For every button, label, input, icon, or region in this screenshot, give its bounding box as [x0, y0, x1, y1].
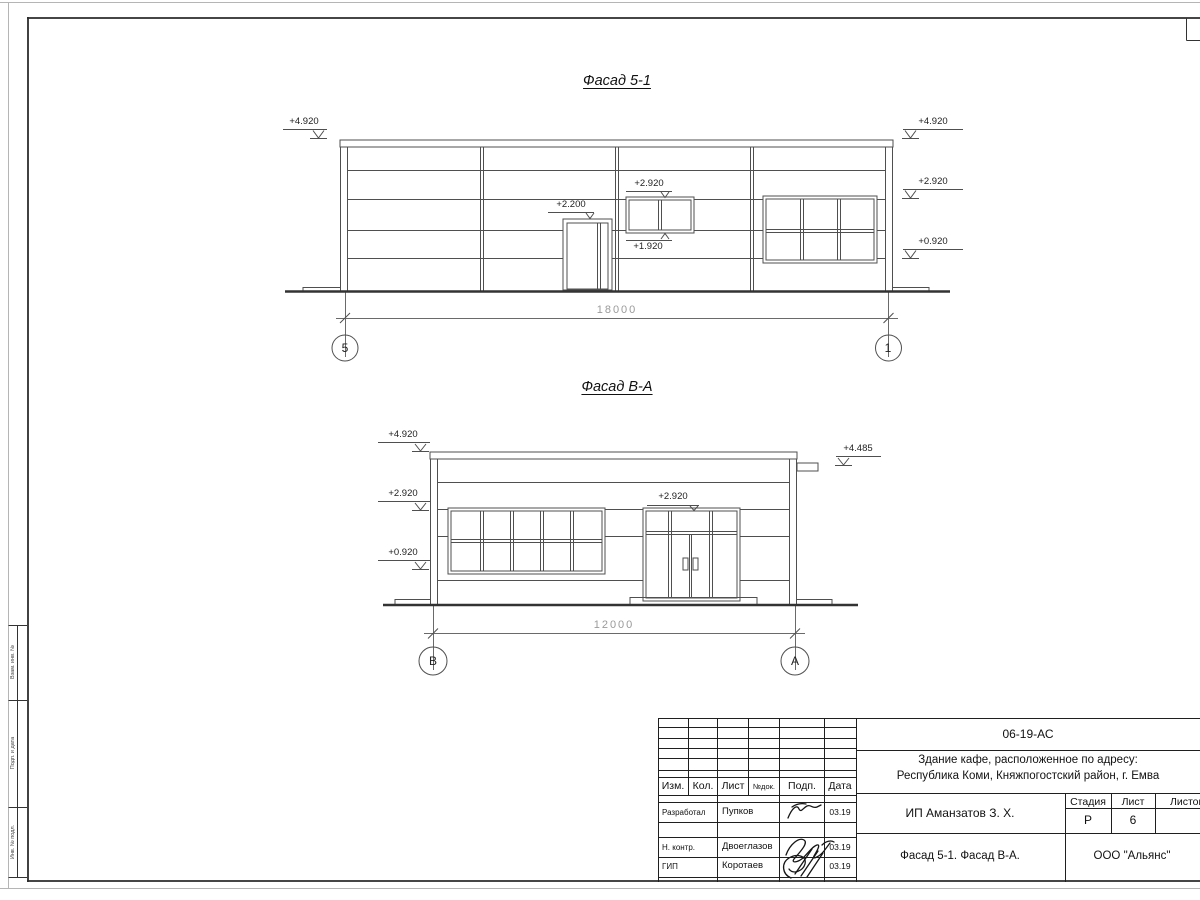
titleblock-project-line2: Республика Коми, Княжпогостский район, г…	[897, 771, 1159, 783]
titleblock-sheets-label: Листов	[1170, 797, 1200, 808]
facade1-level-right-mid: +2.920	[918, 177, 947, 187]
facade1-level-right-top: +4.920	[918, 117, 947, 127]
facade1-level-window-bottom: +1.920	[633, 242, 662, 252]
titleblock-date-gip: 03.19	[829, 862, 850, 871]
titleblock-col-podp: Подп.	[788, 781, 816, 792]
titleblock-role-gip: ГИП	[662, 863, 678, 871]
facade2-dimension: 12000	[594, 620, 635, 631]
facade1-level-left-top: +4.920	[289, 117, 318, 127]
facade1-level-door: +2.200	[556, 200, 585, 210]
facade2-axis-a: А	[791, 655, 799, 667]
titleblock-doc-number: 06-19-АС	[1002, 728, 1053, 740]
signatures	[784, 804, 834, 878]
titleblock-sheet-value: 6	[1130, 814, 1137, 826]
titleblock-role-developer: Разработал	[662, 809, 706, 817]
facade1-axis-5: 5	[342, 342, 349, 354]
facade1-axis-1: 1	[885, 342, 892, 354]
titleblock-sheet-label: Лист	[1122, 797, 1145, 808]
titleblock-col-data: Дата	[828, 781, 851, 792]
facade2-level-right-top: +4.485	[843, 444, 872, 454]
facade1-level-window-top: +2.920	[634, 179, 663, 189]
frame-corner-box	[1187, 18, 1200, 41]
titleblock-date-developer: 03.19	[829, 808, 850, 817]
titleblock-col-list: Лист	[722, 781, 745, 792]
titleblock-date-ncontrol: 03.19	[829, 843, 850, 852]
facade2-level-left-low: +0.920	[388, 548, 417, 558]
facade1-level-right-low: +0.920	[918, 237, 947, 247]
facade2-title: Фасад В-А	[581, 380, 652, 395]
titleblock-stage-value: Р	[1084, 814, 1092, 826]
titleblock-col-izm: Изм.	[662, 781, 685, 792]
drawing-sheet: Взам. инв. № Подп. и дата Инв. № подл. Ф…	[0, 0, 1200, 900]
titleblock-col-ndok: №док.	[753, 783, 775, 791]
titleblock-name-gip: Коротаев	[722, 861, 763, 871]
titleblock-sheet-title: Фасад 5-1. Фасад В-А.	[900, 851, 1020, 863]
titleblock-stage-label: Стадия	[1070, 797, 1106, 808]
margin-label-vzam: Взам. инв. №	[10, 645, 16, 679]
facade2-level-door: +2.920	[658, 492, 687, 502]
titleblock-company: ООО "Альянс"	[1094, 851, 1171, 863]
titleblock-col-kol: Кол.	[693, 781, 714, 792]
facade1-dimension: 18000	[597, 305, 638, 316]
margin-label-podp: Подп. и дата	[10, 737, 16, 769]
margin-label-inv: Инв. № подл.	[10, 825, 16, 859]
titleblock-name-developer: Пупков	[722, 807, 753, 817]
titleblock-name-ncontrol: Двоеглазов	[722, 842, 773, 852]
titleblock-client: ИП Аманзатов З. Х.	[905, 807, 1014, 819]
facade-b-a-linework	[378, 443, 881, 671]
facade1-title: Фасад 5-1	[583, 74, 651, 89]
facade2-level-left-mid: +2.920	[388, 489, 417, 499]
facade2-level-left-top: +4.920	[388, 430, 417, 440]
titleblock-project-line1: Здание кафе, расположенное по адресу:	[918, 755, 1138, 767]
titleblock-role-ncontrol: Н. контр.	[662, 844, 695, 852]
facade2-axis-b: В	[429, 655, 437, 667]
facade-5-1-linework	[283, 130, 963, 358]
